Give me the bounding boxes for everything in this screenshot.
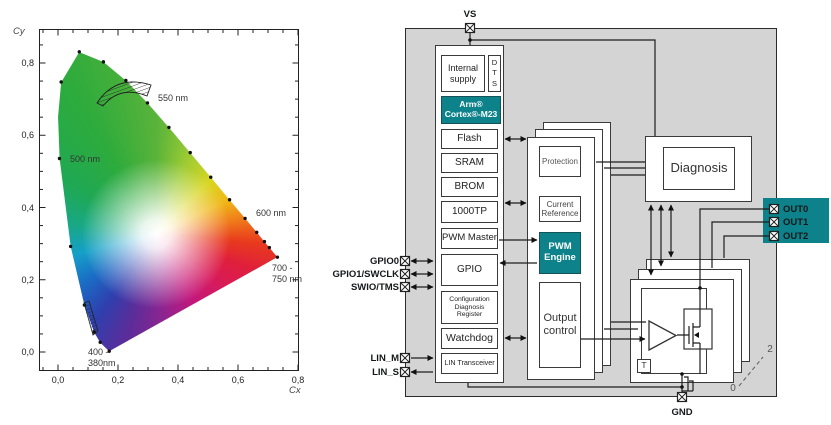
block-config-register: Configuration Diagnosis Register <box>441 291 498 324</box>
block-watchdog: Watchdog <box>441 328 498 349</box>
dts-s: S <box>492 79 497 90</box>
out-pin-group <box>763 198 829 243</box>
block-diagnosis: Diagnosis <box>663 147 735 190</box>
pin-label-vs: VS <box>464 9 477 20</box>
y-tick-4: 0,0 <box>21 347 34 357</box>
y-tick-1: 0,6 <box>21 130 34 140</box>
block-protection: Protection <box>539 146 581 177</box>
cie-plot-area <box>39 29 299 371</box>
pin-label-gpio0: GPIO0 <box>370 256 399 267</box>
block-output-control: Output control <box>539 282 581 368</box>
figure-canvas: Internal supply D T S Arm® Cortex®-M23 F… <box>0 0 831 425</box>
x-tick-2: 0,4 <box>172 375 185 385</box>
pin-label-lin-s: LIN_S <box>372 367 399 378</box>
pin-label-gpio1-swclk: GPIO1/SWCLK <box>332 269 399 280</box>
block-temp-sensor: T <box>637 359 651 373</box>
block-1000tp: 1000TP <box>441 201 498 223</box>
block-pwm-master: PWM Master <box>441 228 498 249</box>
dts-t: T <box>492 68 497 79</box>
x-tick-3: 0,6 <box>232 375 245 385</box>
arm-line2: Cortex®-M23 <box>445 110 498 120</box>
block-arm-cortex-m23: Arm® Cortex®-M23 <box>441 96 501 124</box>
x-tick-1: 0,2 <box>112 375 125 385</box>
block-lin-transceiver: LIN Transceiver <box>441 353 498 374</box>
block-current-reference: Current Reference <box>539 196 581 222</box>
block-pwm-engine: PWM Engine <box>539 232 581 274</box>
cie-x-axis-title: Cx <box>289 385 302 396</box>
y-tick-2: 0,4 <box>21 203 34 213</box>
cie-gamut-horseshoe <box>40 30 298 370</box>
pin-label-lin-m: LIN_M <box>371 353 400 364</box>
x-tick-0: 0,0 <box>52 375 65 385</box>
pin-label-gnd: GND <box>671 407 692 418</box>
y-tick-0: 0,8 <box>21 58 34 68</box>
y-tick-3: 0,2 <box>21 275 34 285</box>
x-tick-4: 0,8 <box>292 375 305 385</box>
block-internal-supply: Internal supply <box>441 55 485 92</box>
pin-label-swio-tms: SWIO/TMS <box>351 282 399 293</box>
block-brom: BROM <box>441 177 498 197</box>
block-sram: SRAM <box>441 153 498 173</box>
dts-d: D <box>492 58 497 69</box>
cie-y-axis-title: Cy <box>13 26 26 37</box>
block-flash: Flash <box>441 129 498 149</box>
block-dts: D T S <box>488 55 501 92</box>
block-gpio: GPIO <box>441 254 498 286</box>
